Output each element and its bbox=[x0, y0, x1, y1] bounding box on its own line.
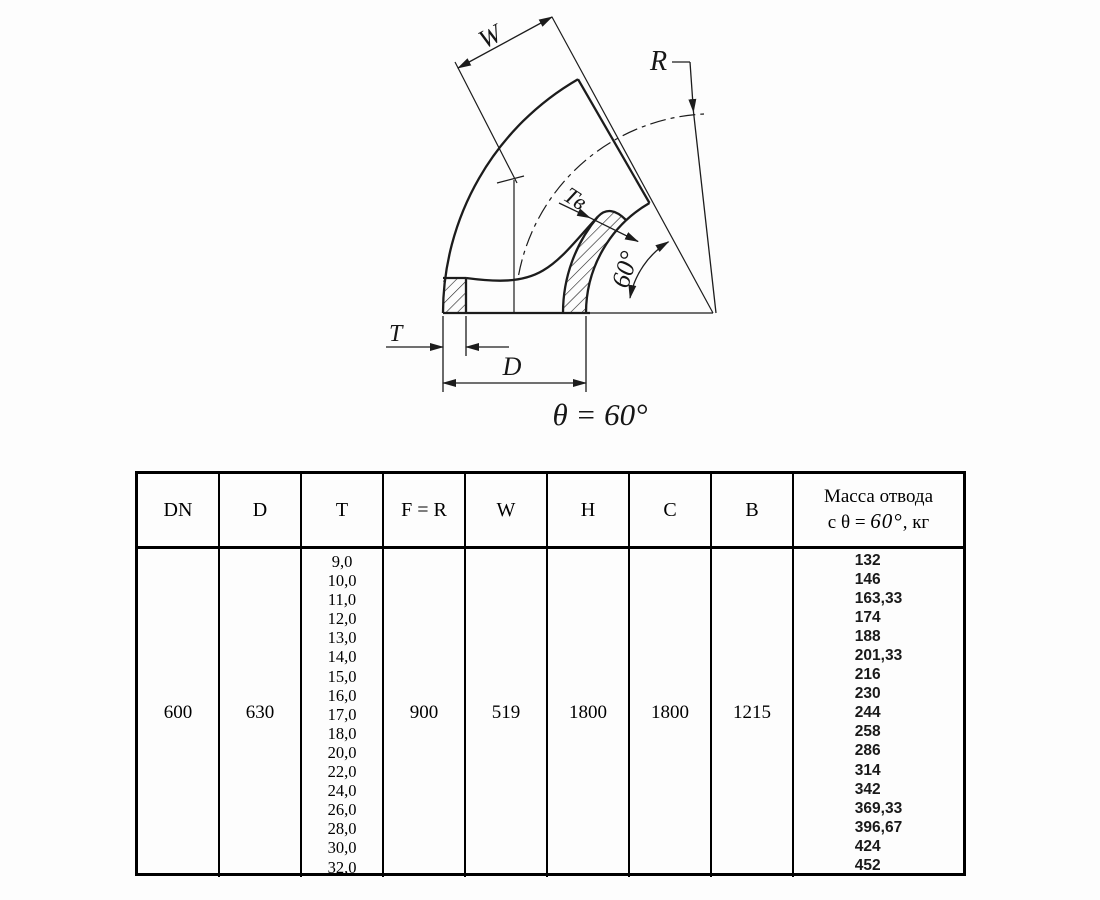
cell-c: 1800 bbox=[630, 549, 712, 877]
value-line: 396,67 bbox=[855, 818, 902, 837]
table-header-row: DN D T F = R W H C B Масса отвода с θ = … bbox=[138, 474, 963, 549]
value-line: 146 bbox=[855, 570, 902, 589]
table-body-row: 600 630 9,010,011,012,013,014,015,016,01… bbox=[138, 549, 963, 873]
label-angle: 60° bbox=[606, 248, 644, 291]
dim-r bbox=[672, 62, 716, 313]
value-line: 369,33 bbox=[855, 799, 902, 818]
label-t: T bbox=[389, 321, 404, 347]
header-mass-line1: Масса отвода bbox=[824, 485, 933, 509]
header-fr: F = R bbox=[384, 474, 466, 546]
cell-b: 1215 bbox=[712, 549, 794, 877]
label-w: W bbox=[474, 18, 509, 55]
value-line: 15,0 bbox=[328, 667, 357, 686]
value-line: 132 bbox=[855, 551, 902, 570]
cell-t-values: 9,010,011,012,013,014,015,016,017,018,02… bbox=[302, 549, 384, 877]
value-line: 26,0 bbox=[328, 800, 357, 819]
value-line: 16,0 bbox=[328, 686, 357, 705]
value-line: 10,0 bbox=[328, 571, 357, 590]
value-line: 216 bbox=[855, 665, 902, 684]
cell-dn: 600 bbox=[138, 549, 220, 877]
value-line: 201,33 bbox=[855, 646, 902, 665]
dimensions-table: DN D T F = R W H C B Масса отвода с θ = … bbox=[135, 471, 966, 876]
dim-t bbox=[386, 316, 509, 392]
value-line: 12,0 bbox=[328, 609, 357, 628]
header-w: W bbox=[466, 474, 548, 546]
header-t: T bbox=[302, 474, 384, 546]
value-line: 17,0 bbox=[328, 705, 357, 724]
header-c: C bbox=[630, 474, 712, 546]
value-line: 9,0 bbox=[332, 552, 353, 571]
value-line: 24,0 bbox=[328, 781, 357, 800]
header-b: B bbox=[712, 474, 794, 546]
value-line: 314 bbox=[855, 761, 902, 780]
value-line: 163,33 bbox=[855, 589, 902, 608]
top-face bbox=[578, 79, 650, 203]
cell-w: 519 bbox=[466, 549, 548, 877]
value-line: 230 bbox=[855, 684, 902, 703]
value-line: 20,0 bbox=[328, 743, 357, 762]
drawing-caption: θ = 60° bbox=[552, 397, 647, 432]
value-line: 188 bbox=[855, 627, 902, 646]
mass-values-block: 132146163,33174188201,332162302442582863… bbox=[855, 551, 902, 876]
value-line: 32,0 bbox=[328, 858, 357, 877]
value-line: 342 bbox=[855, 780, 902, 799]
header-mass-line2: с θ = 60°, кг bbox=[828, 509, 929, 535]
label-r: R bbox=[649, 46, 667, 77]
value-line: 286 bbox=[855, 741, 902, 760]
cell-d: 630 bbox=[220, 549, 302, 877]
value-line: 258 bbox=[855, 722, 902, 741]
value-line: 244 bbox=[855, 703, 902, 722]
value-line: 424 bbox=[855, 837, 902, 856]
label-tv: Тв bbox=[559, 182, 591, 215]
value-line: 13,0 bbox=[328, 628, 357, 647]
header-d: D bbox=[220, 474, 302, 546]
cell-fr: 900 bbox=[384, 549, 466, 877]
header-h: H bbox=[548, 474, 630, 546]
header-dn: DN bbox=[138, 474, 220, 546]
value-line: 18,0 bbox=[328, 724, 357, 743]
elbow-drawing: W R Тв 60° T D θ = 6 bbox=[0, 0, 1100, 465]
value-line: 30,0 bbox=[328, 838, 357, 857]
cell-mass-values: 132146163,33174188201,332162302442582863… bbox=[794, 549, 963, 877]
value-line: 452 bbox=[855, 856, 902, 875]
cell-h: 1800 bbox=[548, 549, 630, 877]
header-mass: Масса отвода с θ = 60°, кг bbox=[794, 474, 963, 546]
value-line: 174 bbox=[855, 608, 902, 627]
value-line: 11,0 bbox=[328, 590, 356, 609]
value-line: 14,0 bbox=[328, 647, 357, 666]
page: W R Тв 60° T D θ = 6 bbox=[0, 0, 1100, 900]
value-line: 28,0 bbox=[328, 819, 357, 838]
label-d: D bbox=[502, 352, 522, 381]
value-line: 22,0 bbox=[328, 762, 357, 781]
